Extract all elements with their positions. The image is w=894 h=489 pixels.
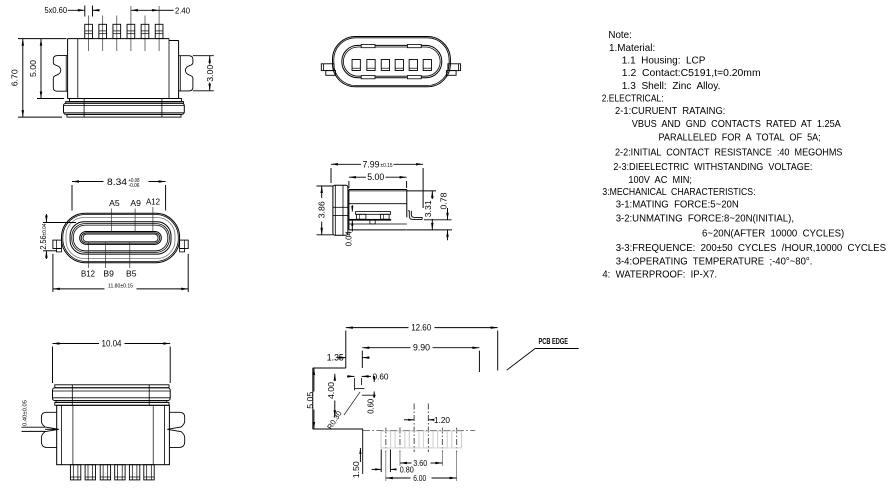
svg-text:0.78: 0.78 xyxy=(438,192,448,209)
svg-text:PCB EDGE: PCB EDGE xyxy=(539,337,569,346)
svg-text:R0.30: R0.30 xyxy=(325,409,343,431)
svg-text:9.90: 9.90 xyxy=(413,343,430,353)
svg-text:3.86: 3.86 xyxy=(316,201,326,218)
svg-text:3-2:UNMATING FORCE:8~20N(INIT: 3-2:UNMATING FORCE:8~20N(INITIAL), xyxy=(616,214,794,225)
svg-text:1.20: 1.20 xyxy=(434,415,450,425)
svg-text:100V AC MIN;: 100V AC MIN; xyxy=(628,175,692,186)
svg-text:3-3:FREQUENCE: 200±50 CYCLES: 3-3:FREQUENCE: 200±50 CYCLES /HOUR,10000… xyxy=(616,243,886,254)
svg-text:11.80±0.15: 11.80±0.15 xyxy=(108,284,133,290)
svg-text:1.Material:: 1.Material: xyxy=(609,43,655,54)
svg-text:2.40: 2.40 xyxy=(175,5,190,15)
svg-text:0.80: 0.80 xyxy=(400,464,414,474)
svg-text:2-1:CURUENT RATAING:: 2-1:CURUENT RATAING: xyxy=(615,106,725,117)
svg-text:A12: A12 xyxy=(146,197,160,207)
svg-text:3.60: 3.60 xyxy=(413,458,427,468)
svg-text:2.ELECTRICAL:: 2.ELECTRICAL: xyxy=(602,93,664,104)
svg-text:±0.15: ±0.15 xyxy=(381,163,393,169)
svg-text:3.31: 3.31 xyxy=(423,200,433,217)
svg-text:4.00: 4.00 xyxy=(326,382,336,399)
svg-text:3-4:OPERATING TEMPERATURE ;-: 3-4:OPERATING TEMPERATURE ;-40°~80°. xyxy=(616,257,813,268)
svg-text:1.50: 1.50 xyxy=(351,461,361,478)
svg-text:A9: A9 xyxy=(130,198,141,208)
svg-text:-0.06: -0.06 xyxy=(129,183,140,189)
svg-text:5x0.60: 5x0.60 xyxy=(45,6,68,15)
svg-text:4: WATERPROOF: IP-X7.: 4: WATERPROOF: IP-X7. xyxy=(602,269,717,280)
svg-text:1.35: 1.35 xyxy=(327,353,344,363)
svg-text:0.04: 0.04 xyxy=(345,231,354,246)
svg-text:PARALLELED FOR A TOTAL OF: PARALLELED FOR A TOTAL OF 5A; xyxy=(659,133,821,144)
svg-text:1.2 Contact:C5191,t=0.20mm: 1.2 Contact:C5191,t=0.20mm xyxy=(622,68,761,79)
svg-text:5.00: 5.00 xyxy=(367,172,384,182)
svg-text:2.56±0.04: 2.56±0.04 xyxy=(39,224,48,250)
svg-text:6.70: 6.70 xyxy=(10,69,20,86)
svg-text:B12: B12 xyxy=(81,268,95,278)
svg-text:1.1 Housing: LCP: 1.1 Housing: LCP xyxy=(622,56,706,67)
svg-text:A5: A5 xyxy=(109,198,120,208)
svg-text:3-1:MATING FORCE:5~20N: 3-1:MATING FORCE:5~20N xyxy=(616,200,739,211)
svg-text:10.04: 10.04 xyxy=(102,339,122,349)
svg-text:B5: B5 xyxy=(126,268,137,278)
svg-text:8.34: 8.34 xyxy=(107,176,127,187)
svg-text:5.05: 5.05 xyxy=(305,392,315,409)
svg-text:VBUS AND GND CONTACTS RATE: VBUS AND GND CONTACTS RATED AT 1.25A xyxy=(632,119,841,130)
svg-text:3:MECHANICAL CHARACTERISTICS:: 3:MECHANICAL CHARACTERISTICS: xyxy=(602,187,755,198)
svg-text:5.00: 5.00 xyxy=(28,60,38,77)
svg-text:7.99: 7.99 xyxy=(363,159,380,169)
svg-text:0.60: 0.60 xyxy=(367,398,376,413)
svg-text:1.3 Shell: Zinc Alloy.: 1.3 Shell: Zinc Alloy. xyxy=(622,81,721,92)
svg-text:12.60: 12.60 xyxy=(411,323,431,333)
svg-text:3.00: 3.00 xyxy=(205,65,215,82)
svg-text:6~20N(AFTER 10000 CYCLES): 6~20N(AFTER 10000 CYCLES) xyxy=(702,229,844,240)
svg-text:6.00: 6.00 xyxy=(413,473,426,483)
svg-text:0.40±0.05: 0.40±0.05 xyxy=(23,400,29,426)
svg-text:2-3:DIEELECTRIC WITHSTANDING: 2-3:DIEELECTRIC WITHSTANDING VOLTAGE: xyxy=(613,162,812,173)
svg-text:Note:: Note: xyxy=(608,30,631,41)
svg-text:2-2:INITIAL CONTACT RESISTAN: 2-2:INITIAL CONTACT RESISTANCE :40 MEGOH… xyxy=(615,148,843,159)
svg-text:B9: B9 xyxy=(103,268,114,278)
